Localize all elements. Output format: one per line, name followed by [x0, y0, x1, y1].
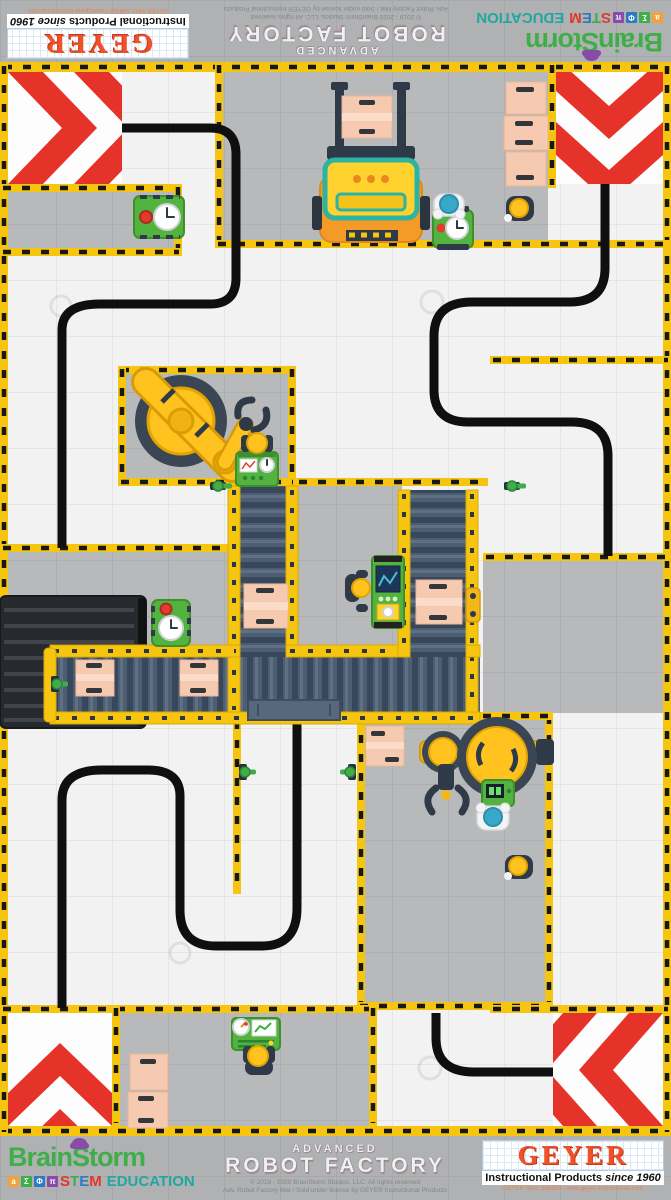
chevron-corner-top-right [556, 58, 663, 203]
roller-cart [466, 588, 480, 622]
worker-arm2-console [476, 803, 510, 830]
geyer-logo: GEYER Instructional Products since 1960 … [482, 1140, 664, 1192]
footer-brand-bar: BrainStorm a Σ Φ π STEM EDUCATION ADVANC… [0, 1137, 671, 1200]
product-line-robot-factory: ROBOT FACTORY [200, 1155, 470, 1176]
console-conveyor [372, 556, 404, 628]
brainstorm-name: BrainStorm [8, 1144, 208, 1171]
product-line-advanced: ADVANCED [201, 44, 471, 56]
worker-cart-pusher [433, 194, 465, 219]
product-logo: ADVANCED ROBOT FACTORY © 2019 - 2020 Bra… [201, 3, 471, 56]
stem-block-icon: Σ [639, 12, 650, 23]
stem-education-line: a Σ Φ π STEM EDUCATION [8, 1173, 208, 1190]
geyer-name-box: GEYER [7, 28, 189, 59]
product-line-robot-factory: ROBOT FACTORY [201, 23, 471, 44]
geyer-logo: GEYER Instructional Products since 1960 … [7, 7, 189, 59]
crate-on-forklift [342, 96, 392, 138]
worker-arm1-console [241, 433, 273, 453]
stem-block-icon: π [47, 1176, 58, 1187]
timer-cart-conveyor [152, 600, 190, 646]
geyer-contact: GEYER SKU: 538503 / www.geyer-instructio… [482, 1186, 664, 1192]
stem-block-icon: a [8, 1176, 19, 1187]
stem-word: STEM [60, 1173, 102, 1190]
geyer-tagline: Instructional Products since 1960 [482, 1171, 664, 1185]
worker-bottom-console [243, 1046, 275, 1075]
timer-cart-top-left [134, 196, 184, 238]
brainstorm-logo: BrainStorm a Σ Φ π STEM EDUCATION [463, 9, 663, 55]
stem-block-icon: Σ [21, 1176, 32, 1187]
brainstorm-name: BrainStorm [463, 28, 663, 55]
geyer-contact: GEYER SKU: 538503 / www.geyer-instructio… [7, 7, 189, 13]
console-arm1 [236, 452, 278, 486]
robot-factory-mat: BrainStorm a Σ Φ π STEM EDUCATION ADVANC… [0, 0, 671, 1200]
stem-block-icon: Φ [626, 12, 637, 23]
loading-dock [248, 700, 340, 720]
brain-icon [72, 1138, 87, 1149]
stem-word: STEM [569, 9, 611, 26]
mat-graphics [0, 0, 671, 1200]
geyer-tagline: Instructional Products since 1960 [7, 14, 189, 28]
stem-block-icon: a [652, 12, 663, 23]
brain-icon [584, 50, 599, 61]
stem-education-line: a Σ Φ π STEM EDUCATION [463, 9, 663, 26]
header-brand-bar-rotated: BrainStorm a Σ Φ π STEM EDUCATION ADVANC… [0, 0, 671, 62]
education-word: EDUCATION [476, 9, 564, 26]
stem-block-icon: π [613, 12, 624, 23]
copyright-text: © 2019 - 2020 BrainStorm Studios, LLC. A… [200, 1179, 470, 1196]
geyer-name-box: GEYER [482, 1140, 664, 1171]
stem-block-icon: Φ [34, 1176, 45, 1187]
product-logo: ADVANCED ROBOT FACTORY © 2019 - 2020 Bra… [200, 1143, 470, 1196]
worker-hardhat-top [504, 196, 534, 222]
copyright-text: © 2019 - 2020 BrainStorm Studios, LLC. A… [201, 3, 471, 20]
console-arm2 [482, 780, 514, 806]
conveyor-belt-right-vertical [410, 490, 466, 657]
worker-hardhat-bottom-right [504, 855, 533, 880]
brainstorm-logo: BrainStorm a Σ Φ π STEM EDUCATION [8, 1144, 208, 1190]
conveyor-belt-left-vertical [240, 486, 286, 657]
education-word: EDUCATION [107, 1173, 195, 1190]
